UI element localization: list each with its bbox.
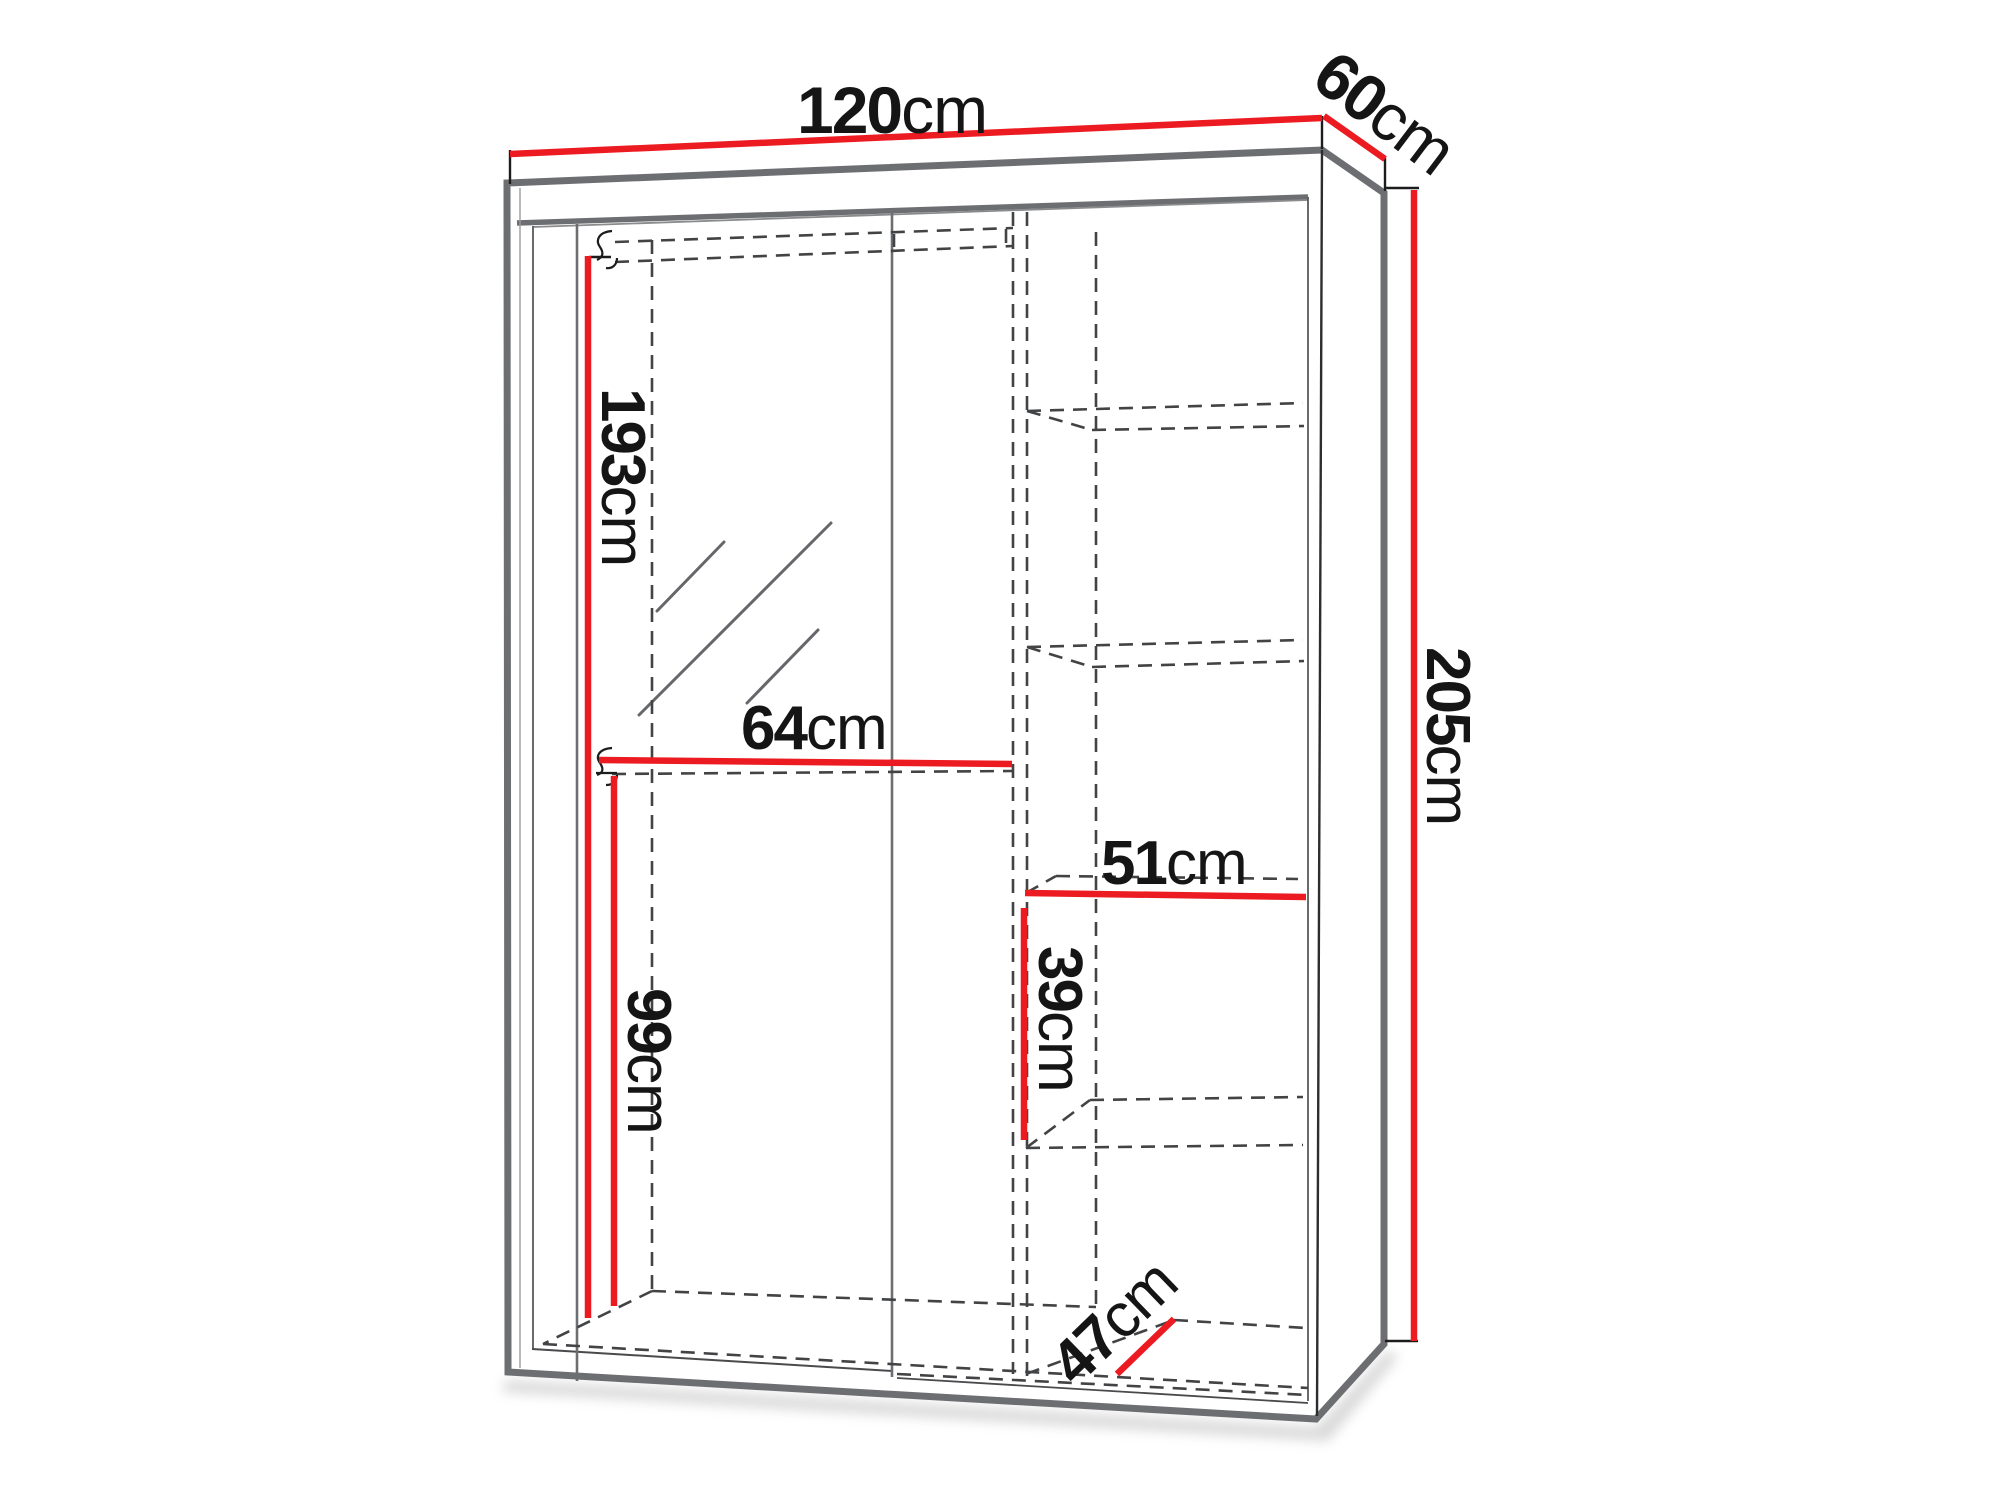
svg-text:193cm: 193cm xyxy=(588,388,657,566)
svg-text:51cm: 51cm xyxy=(1101,829,1247,898)
svg-text:64cm: 64cm xyxy=(741,694,887,763)
svg-text:39cm: 39cm xyxy=(1025,946,1094,1092)
svg-text:120cm: 120cm xyxy=(797,73,987,147)
svg-text:205cm: 205cm xyxy=(1413,647,1482,825)
svg-text:99cm: 99cm xyxy=(614,988,683,1134)
